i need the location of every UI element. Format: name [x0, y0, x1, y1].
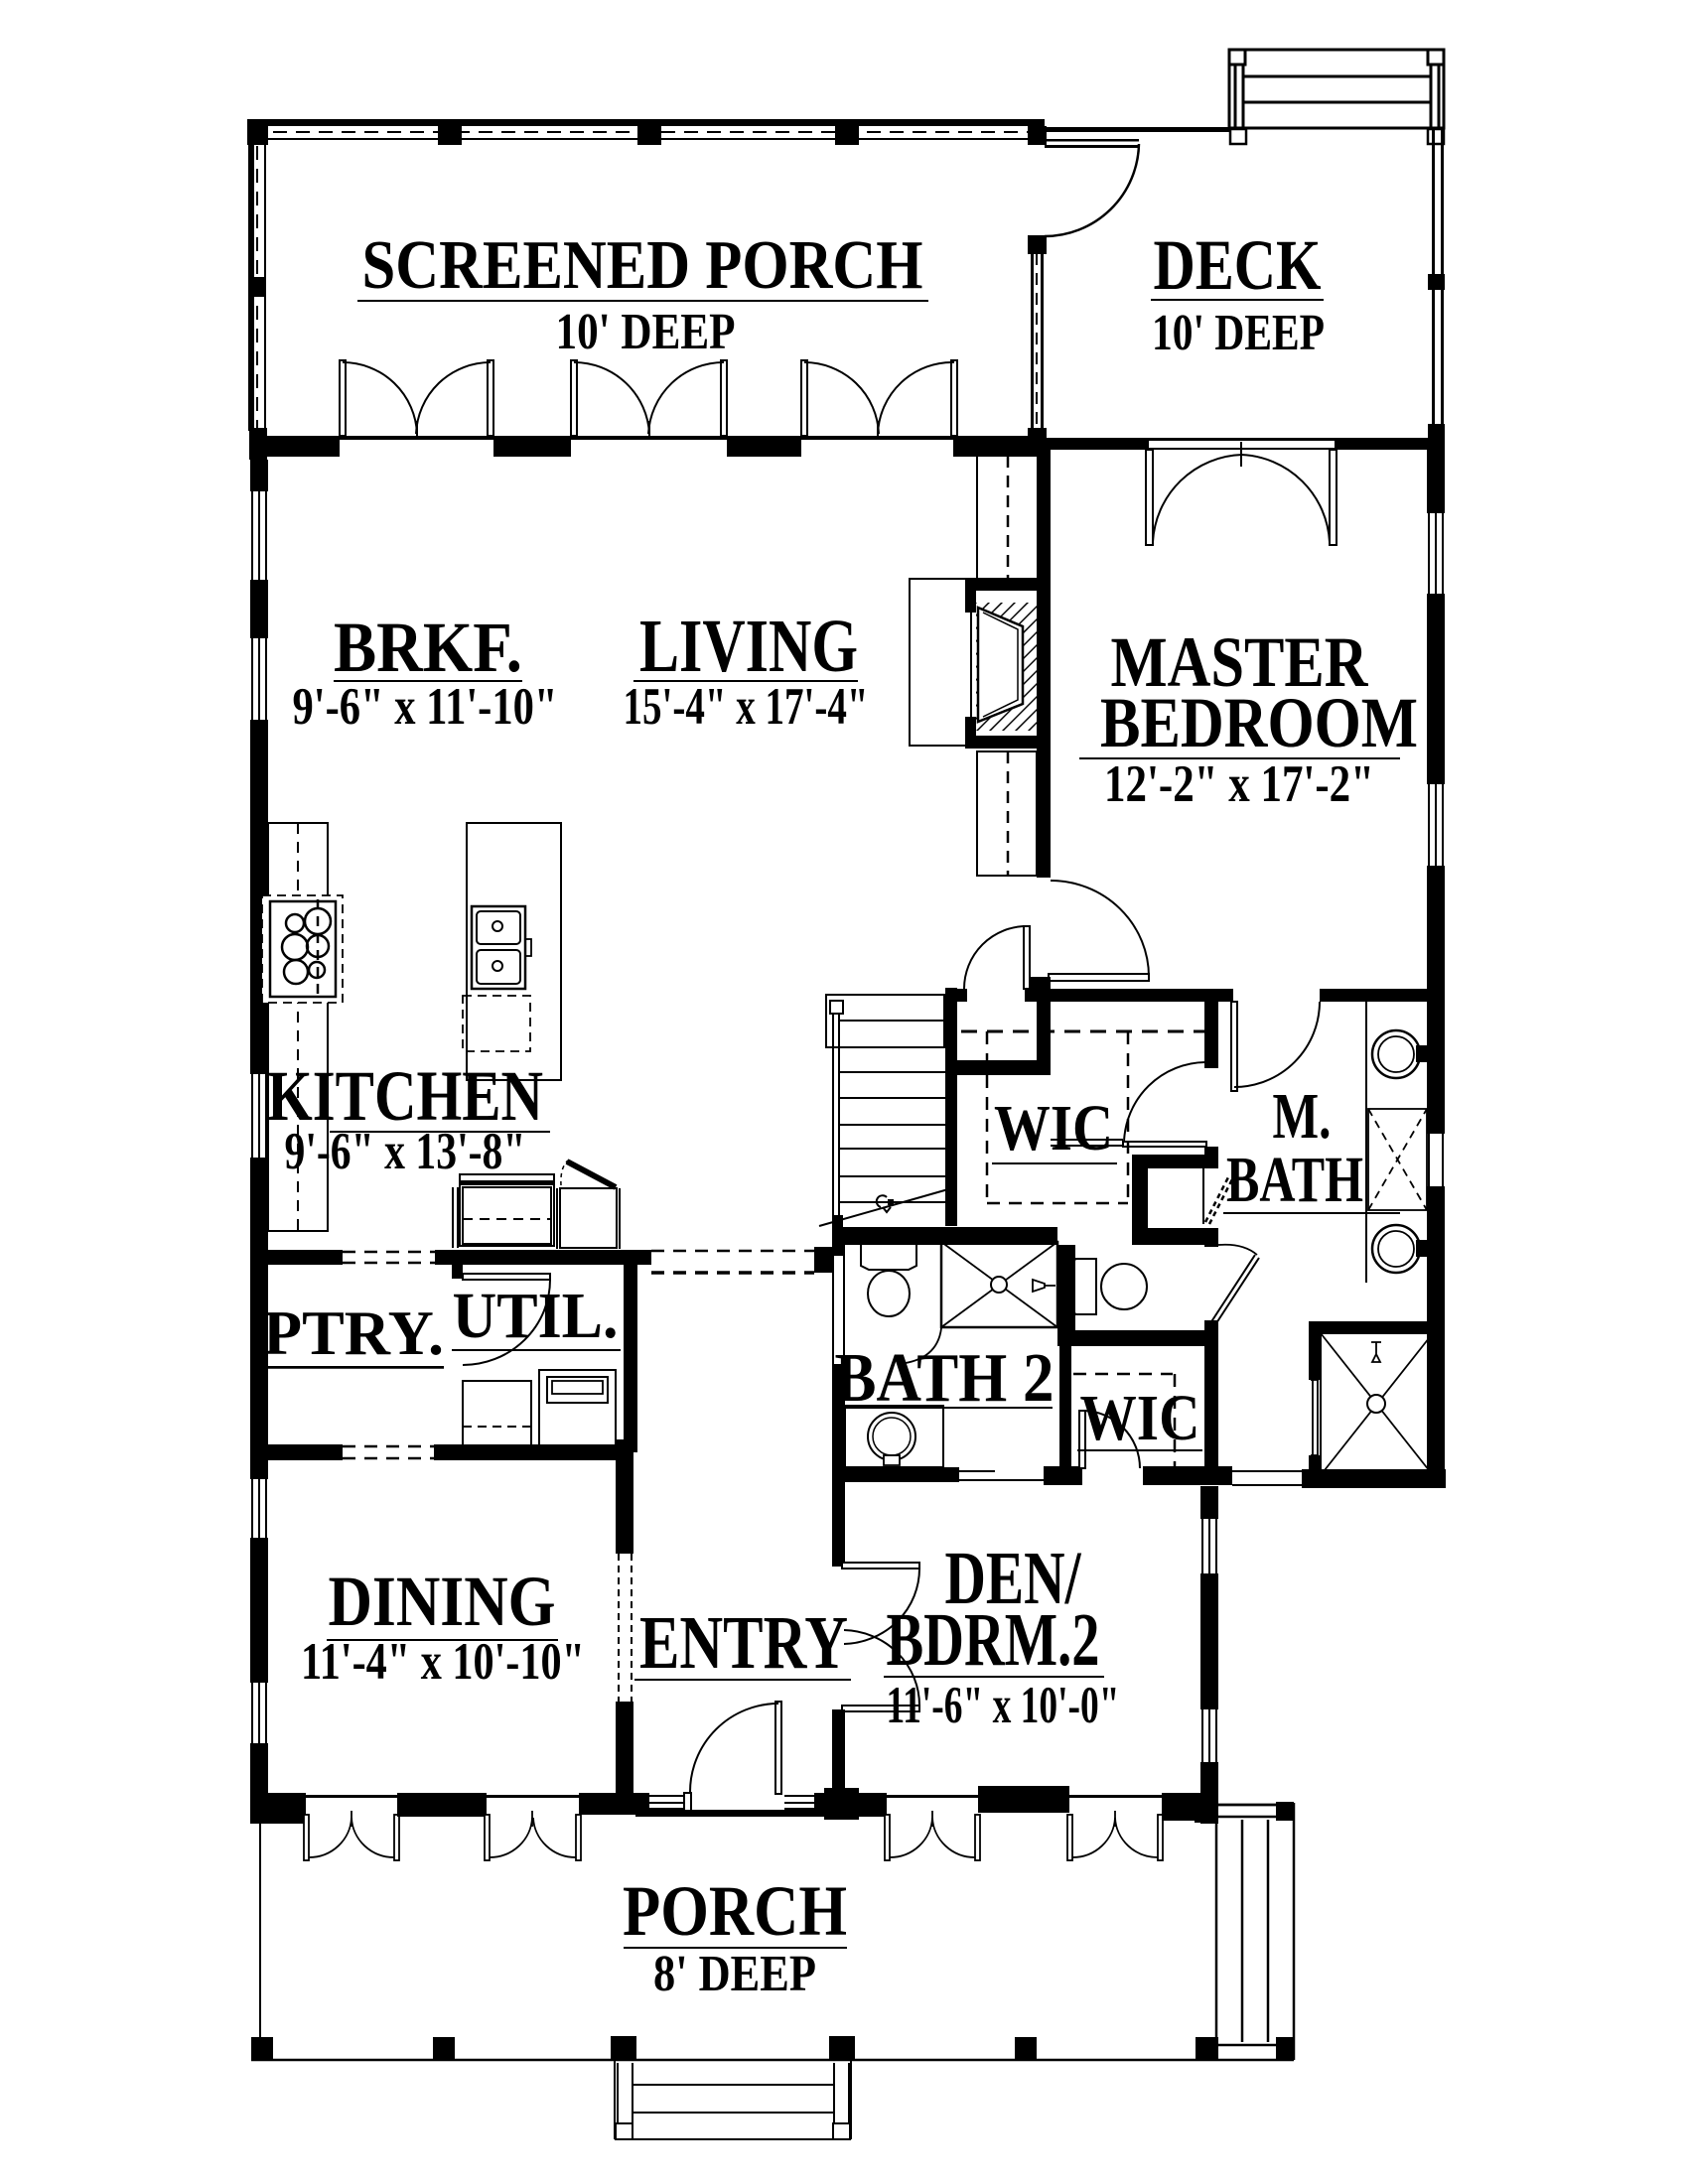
svg-text:15'-4" x 17'-4": 15'-4" x 17'-4" [624, 678, 869, 736]
svg-text:10' DEEP: 10' DEEP [556, 304, 736, 360]
svg-text:M.: M. [1273, 1080, 1332, 1153]
svg-text:PORCH: PORCH [623, 1871, 847, 1951]
svg-text:BATH 2: BATH 2 [835, 1340, 1055, 1417]
svg-text:11'-4" x 10'-10": 11'-4" x 10'-10" [301, 1633, 585, 1691]
svg-text:ENTRY: ENTRY [639, 1601, 848, 1685]
svg-text:9'-6" x 13'-8": 9'-6" x 13'-8" [285, 1123, 526, 1180]
svg-text:WIC: WIC [1080, 1382, 1200, 1454]
svg-text:11'-6" x 10'-0": 11'-6" x 10'-0" [887, 1677, 1120, 1734]
svg-text:SCREENED PORCH: SCREENED PORCH [362, 227, 923, 304]
svg-text:UTIL.: UTIL. [453, 1280, 619, 1352]
svg-text:BEDROOM: BEDROOM [1100, 683, 1418, 762]
svg-text:DECK: DECK [1154, 225, 1322, 305]
svg-text:12'-2" x 17'-2": 12'-2" x 17'-2" [1104, 755, 1374, 813]
svg-text:LIVING: LIVING [639, 605, 858, 688]
svg-text:PTRY.: PTRY. [263, 1297, 444, 1368]
svg-text:10' DEEP: 10' DEEP [1152, 305, 1325, 361]
svg-text:WIC: WIC [994, 1092, 1113, 1164]
svg-text:9'-6" x 11'-10": 9'-6" x 11'-10" [293, 678, 558, 736]
svg-text:8' DEEP: 8' DEEP [653, 1946, 816, 2002]
svg-text:DINING: DINING [329, 1562, 556, 1641]
svg-text:BRKF.: BRKF. [334, 608, 522, 687]
svg-text:BDRM.2: BDRM.2 [887, 1598, 1100, 1682]
svg-text:BATH: BATH [1226, 1144, 1363, 1216]
